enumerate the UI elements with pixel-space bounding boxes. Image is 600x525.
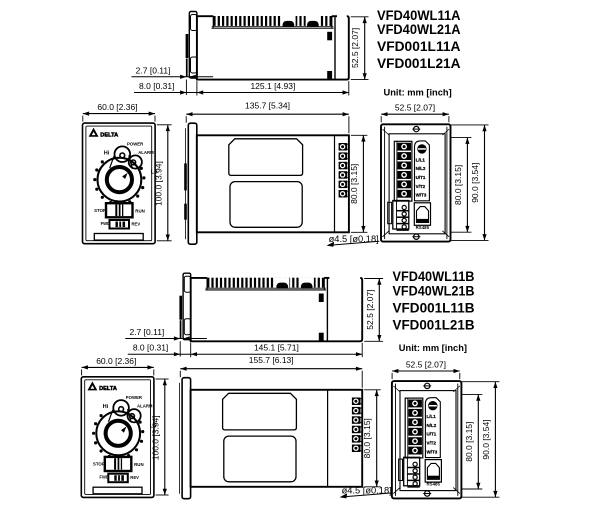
svg-text:FWD: FWD	[101, 221, 111, 226]
svg-text:REV: REV	[130, 475, 139, 480]
svg-text:Hi: Hi	[104, 150, 110, 156]
svg-text:W/T3: W/T3	[427, 449, 438, 454]
svg-text:100.0 [3.94]: 100.0 [3.94]	[150, 415, 160, 460]
svg-text:STOP: STOP	[93, 462, 105, 467]
svg-text:52.5 [2.07]: 52.5 [2.07]	[365, 290, 375, 330]
svg-text:RS485: RS485	[416, 225, 430, 230]
svg-text:VFD001L11B: VFD001L11B	[393, 300, 475, 316]
svg-text:POWER: POWER	[126, 395, 143, 400]
svg-text:100.0 [3.94]: 100.0 [3.94]	[153, 161, 163, 206]
svg-text:DELTA: DELTA	[99, 386, 117, 392]
svg-text:145.1 [5.71]: 145.1 [5.71]	[254, 343, 299, 353]
svg-text:80.0 [3.15]: 80.0 [3.15]	[464, 422, 474, 462]
svg-text:80.0 [3.15]: 80.0 [3.15]	[453, 165, 463, 205]
svg-text:U/T1: U/T1	[427, 432, 437, 437]
svg-text:VFD40WL21A: VFD40WL21A	[377, 21, 461, 37]
svg-text:VFD001L11A: VFD001L11A	[377, 38, 461, 54]
svg-text:REV: REV	[132, 221, 141, 226]
svg-text:60.0 [2.36]: 60.0 [2.36]	[96, 356, 136, 366]
svg-text:80.0 [3.15]: 80.0 [3.15]	[349, 164, 359, 204]
svg-text:V/T2: V/T2	[416, 184, 426, 189]
svg-text:L/L1: L/L1	[416, 157, 426, 162]
svg-text:2.7 [0.11]: 2.7 [0.11]	[136, 66, 171, 76]
svg-text:V/T2: V/T2	[427, 441, 437, 446]
svg-text:FWD: FWD	[99, 475, 109, 480]
svg-text:8.0 [0.31]: 8.0 [0.31]	[133, 343, 168, 353]
svg-text:8.0 [0.31]: 8.0 [0.31]	[139, 81, 174, 91]
svg-text:W/T3: W/T3	[416, 193, 427, 198]
svg-text:52.5 [2.07]: 52.5 [2.07]	[350, 28, 360, 68]
svg-text:DELTA: DELTA	[100, 132, 118, 138]
svg-text:52.5 [2.07]: 52.5 [2.07]	[395, 103, 435, 113]
svg-text:RS485: RS485	[427, 482, 441, 487]
svg-text:80.0 [3.15]: 80.0 [3.15]	[362, 418, 372, 458]
svg-text:155.7 [6.13]: 155.7 [6.13]	[249, 355, 294, 365]
svg-text:STOP: STOP	[94, 208, 106, 213]
svg-text:RUN: RUN	[135, 208, 145, 213]
svg-text:VFD001L21A: VFD001L21A	[377, 55, 461, 71]
svg-text:ALARM: ALARM	[138, 150, 154, 155]
svg-text:90.0 [3.54]: 90.0 [3.54]	[481, 419, 491, 459]
svg-text:Unit: mm [inch]: Unit: mm [inch]	[384, 87, 452, 97]
svg-text:U/T1: U/T1	[416, 175, 426, 180]
svg-text:POWER: POWER	[127, 141, 144, 146]
svg-text:125.1 [4.93]: 125.1 [4.93]	[250, 81, 295, 91]
svg-text:Unit: mm [inch]: Unit: mm [inch]	[399, 343, 467, 353]
svg-text:VFD40WL21B: VFD40WL21B	[393, 283, 475, 299]
svg-text:Hi: Hi	[103, 404, 109, 410]
svg-text:VFD001L21B: VFD001L21B	[393, 317, 475, 333]
svg-text:2.7 [0.11]: 2.7 [0.11]	[129, 327, 164, 337]
svg-text:135.7 [5.34]: 135.7 [5.34]	[245, 101, 290, 111]
svg-text:52.5 [2.07]: 52.5 [2.07]	[406, 359, 446, 369]
svg-text:N/L2: N/L2	[427, 423, 437, 428]
svg-text:90.0 [3.54]: 90.0 [3.54]	[470, 163, 480, 203]
svg-text:RUN: RUN	[134, 462, 144, 467]
svg-text:L/L1: L/L1	[427, 414, 437, 419]
svg-text:60.0 [2.36]: 60.0 [2.36]	[97, 102, 137, 112]
svg-text:ALARM: ALARM	[137, 404, 153, 409]
svg-text:N/L2: N/L2	[416, 166, 426, 171]
